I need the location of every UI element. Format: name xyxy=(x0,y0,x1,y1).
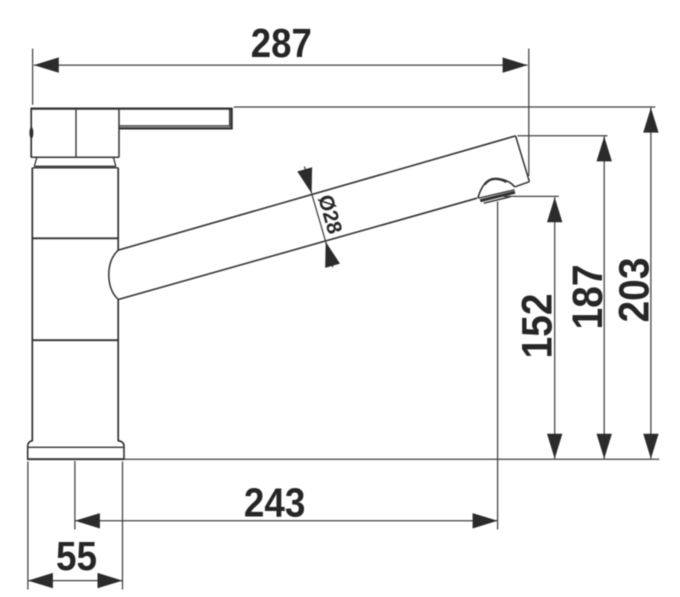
svg-text:Ø28: Ø28 xyxy=(313,192,346,237)
svg-text:203: 203 xyxy=(611,258,659,323)
svg-text:55: 55 xyxy=(56,533,97,579)
svg-text:187: 187 xyxy=(564,265,612,330)
svg-text:243: 243 xyxy=(244,480,306,526)
svg-text:287: 287 xyxy=(251,20,312,66)
svg-text:152: 152 xyxy=(514,294,562,359)
